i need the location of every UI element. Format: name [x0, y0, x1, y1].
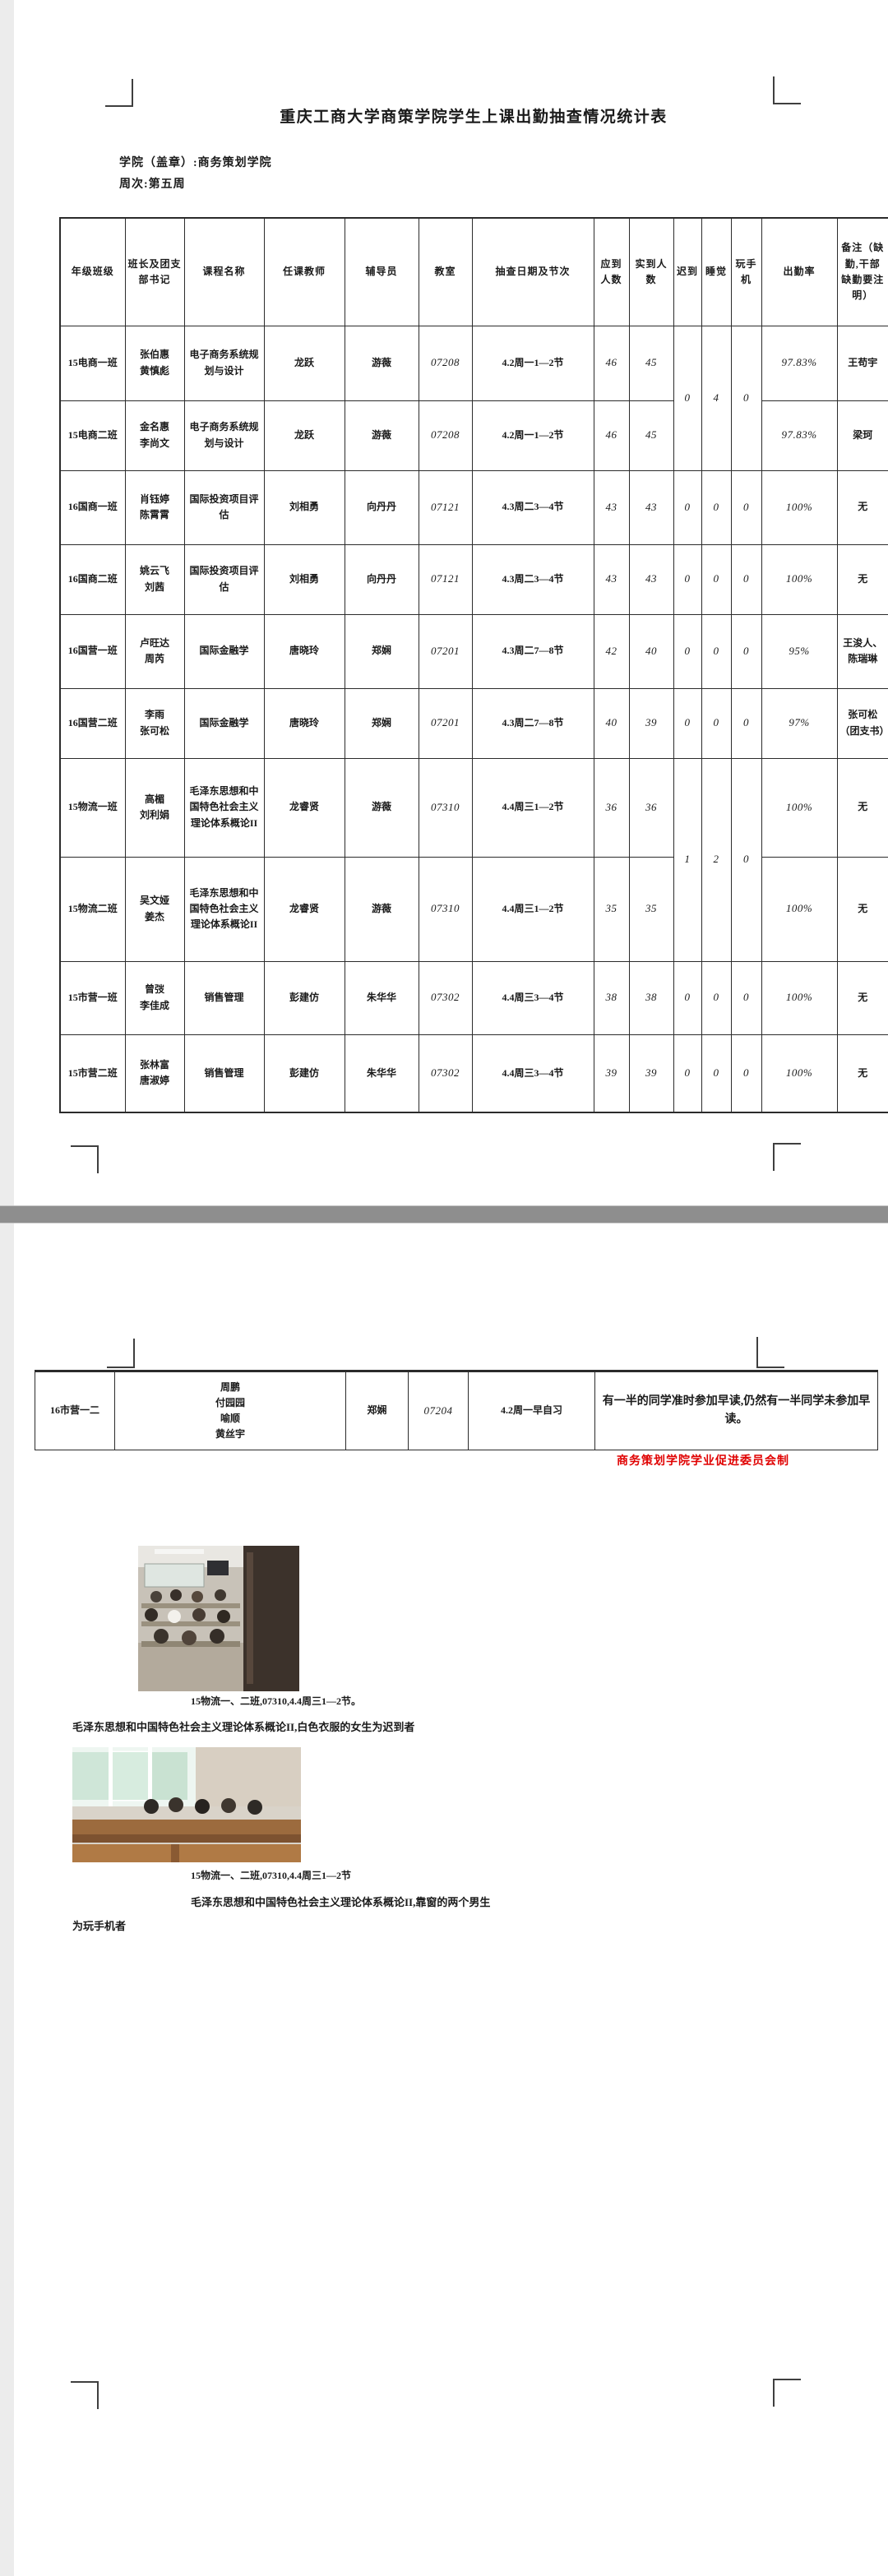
classroom-photo-1-image: [138, 1546, 299, 1691]
crop-mark-p1-bottom-left: [71, 1145, 99, 1173]
cell: 游薇: [345, 400, 419, 470]
document-view: { "page1": { "title": "重庆工商大学商策学院学生上课出勤抽…: [0, 0, 888, 2576]
cell: 0: [701, 688, 731, 758]
cell: 高楣 刘利娟: [125, 758, 184, 857]
cell: 16国营一班: [60, 614, 125, 688]
attendance-table: 年级班级班长及团支部书记课程名称任课教师辅导员教室抽查日期及节次应到人数实到人数…: [59, 217, 888, 1113]
column-header: 玩手机: [731, 218, 761, 326]
cell: 07208: [419, 400, 472, 470]
cell: 95%: [761, 614, 837, 688]
cell: 游薇: [345, 326, 419, 400]
cell: 97.83%: [761, 400, 837, 470]
cell: 金名惠 李尚文: [125, 400, 184, 470]
cell: 100%: [761, 1034, 837, 1112]
table-row: 15电商二班金名惠 李尚文电子商务系统规划与设计龙跃游薇072084.2周一1—…: [60, 400, 888, 470]
cell: 100%: [761, 961, 837, 1034]
cell: 07302: [419, 961, 472, 1034]
cell: 16国商一班: [60, 470, 125, 544]
cell: 王浚人、陈瑞琳: [837, 614, 888, 688]
cell: 38: [594, 961, 629, 1034]
cell: 46: [594, 400, 629, 470]
cell: 07121: [419, 544, 472, 614]
cell: 龙跃: [264, 400, 345, 470]
cell: 43: [594, 544, 629, 614]
cell: 35: [629, 857, 673, 961]
page-break-band: [0, 1205, 888, 1223]
cell: 0: [731, 614, 761, 688]
cell: 15物流二班: [60, 857, 125, 961]
table-row: 15市营二班张林富 唐淑婷销售管理彭建仿朱华华073024.4周三3—4节393…: [60, 1034, 888, 1112]
cell: 07302: [419, 1034, 472, 1112]
cell: 39: [629, 688, 673, 758]
cell: 43: [629, 544, 673, 614]
crop-mark-p2-bottom-left: [71, 2381, 99, 2409]
column-header: 出勤率: [761, 218, 837, 326]
photo2-description-line1: 毛泽东思想和中国特色社会主义理论体系概论II,靠窗的两个男生: [191, 1894, 490, 1909]
cell: 40: [594, 688, 629, 758]
cell: 彭建仿: [264, 1034, 345, 1112]
cell: 张伯惠 黄慎彪: [125, 326, 184, 400]
crop-mark-p1-bottom-right: [773, 1143, 801, 1171]
cell: 4.3周二7—8节: [472, 688, 594, 758]
cell: 无: [837, 758, 888, 857]
cell: 0: [673, 961, 701, 1034]
column-header: 年级班级: [60, 218, 125, 326]
cell: 郑娴: [346, 1371, 409, 1450]
table-row: 16国营一班卢旺达 周芮国际金融学唐晓玲郑娴072014.3周二7—8节4240…: [60, 614, 888, 688]
crop-mark-p1-top-left: [105, 79, 133, 107]
table-row: 16国营二班李雨 张可松国际金融学唐晓玲郑娴072014.3周二7—8节4039…: [60, 688, 888, 758]
cell: 0: [731, 758, 761, 961]
cell: 张林富 唐淑婷: [125, 1034, 184, 1112]
cell: 15物流一班: [60, 758, 125, 857]
cell: 有一半的同学准时参加早读,仍然有一半同学未参加早读。: [595, 1371, 878, 1450]
cell: 李雨 张可松: [125, 688, 184, 758]
classroom-photo-1: [138, 1546, 299, 1691]
cell: 07204: [409, 1371, 469, 1450]
cell: 梁珂: [837, 400, 888, 470]
cell: 07201: [419, 614, 472, 688]
cell: 4.4周三1—2节: [472, 857, 594, 961]
cell: 肖钰婷 陈霄霄: [125, 470, 184, 544]
cell: 国际投资项目评估: [184, 544, 264, 614]
cell: 36: [594, 758, 629, 857]
cell: 毛泽东思想和中国特色社会主义理论体系概论II: [184, 857, 264, 961]
cell: 4.2周一1—2节: [472, 326, 594, 400]
photo2-caption: 15物流一、二班,07310,4.4周三1—2节: [191, 1868, 351, 1882]
cell: 电子商务系统规划与设计: [184, 400, 264, 470]
cell: 毛泽东思想和中国特色社会主义理论体系概论II: [184, 758, 264, 857]
cell: 周鹏 付园园 喻顺 黄丝宇: [115, 1371, 346, 1450]
cell: 0: [673, 544, 701, 614]
classroom-photo-2-image: [72, 1747, 301, 1862]
cell: 07310: [419, 758, 472, 857]
attendance-table-continued: 16市营一二周鹏 付园园 喻顺 黄丝宇郑娴072044.2周一早自习有一半的同学…: [35, 1370, 878, 1450]
cell: 39: [594, 1034, 629, 1112]
column-header: 课程名称: [184, 218, 264, 326]
cell: 吴文娅 姜杰: [125, 857, 184, 961]
cell: 0: [731, 1034, 761, 1112]
page-title: 重庆工商大学商策学院学生上课出勤抽查情况统计表: [59, 104, 888, 127]
cell: 4.2周一早自习: [469, 1371, 595, 1450]
cell: 43: [594, 470, 629, 544]
cell: 39: [629, 1034, 673, 1112]
cell: 4.4周三1—2节: [472, 758, 594, 857]
cell: 卢旺达 周芮: [125, 614, 184, 688]
cell: 36: [629, 758, 673, 857]
crop-mark-p2-top-right: [756, 1337, 784, 1368]
crop-mark-p2-bottom-right: [773, 2379, 801, 2407]
college-line: 学院（盖章）:商务策划学院: [119, 154, 272, 170]
cell: 16国营二班: [60, 688, 125, 758]
cell: 无: [837, 961, 888, 1034]
cell: 0: [673, 470, 701, 544]
cell: 0: [701, 470, 731, 544]
cell: 1: [673, 758, 701, 961]
cell: 彭建仿: [264, 961, 345, 1034]
cell: 王苟宇: [837, 326, 888, 400]
cell: 100%: [761, 857, 837, 961]
cell: 郑娴: [345, 614, 419, 688]
photo1-description: 毛泽东思想和中国特色社会主义理论体系概论II,白色衣服的女生为迟到者: [72, 1718, 414, 1734]
cell: 4.3周二3—4节: [472, 470, 594, 544]
column-header: 任课教师: [264, 218, 345, 326]
cell: 97.83%: [761, 326, 837, 400]
table-row: 16市营一二周鹏 付园园 喻顺 黄丝宇郑娴072044.2周一早自习有一半的同学…: [35, 1371, 878, 1450]
photo2-description-line2: 为玩手机者: [72, 1917, 126, 1933]
cell: 龙睿贤: [264, 758, 345, 857]
crop-mark-p1-top-right: [773, 76, 801, 104]
cell: 刘相勇: [264, 470, 345, 544]
column-header: 班长及团支部书记: [125, 218, 184, 326]
cell: 100%: [761, 544, 837, 614]
cell: 0: [673, 1034, 701, 1112]
cell: 唐晓玲: [264, 688, 345, 758]
cell: 07121: [419, 470, 472, 544]
committee-signature: 商务策划学院学业促进委员会制: [35, 1452, 789, 1468]
column-header: 辅导员: [345, 218, 419, 326]
column-header: 睡觉: [701, 218, 731, 326]
cell: 0: [731, 688, 761, 758]
cell: 销售管理: [184, 1034, 264, 1112]
cell: 龙睿贤: [264, 857, 345, 961]
cell: 0: [731, 326, 761, 470]
cell: 4.4周三3—4节: [472, 961, 594, 1034]
cell: 15市营二班: [60, 1034, 125, 1112]
cell: 曾弢 李佳成: [125, 961, 184, 1034]
cell: 46: [594, 326, 629, 400]
cell: 16国商二班: [60, 544, 125, 614]
cell: 07208: [419, 326, 472, 400]
cell: 游薇: [345, 758, 419, 857]
cell: 唐晓玲: [264, 614, 345, 688]
table-row: 16国商二班姚云飞 刘茜国际投资项目评估刘相勇向丹丹071214.3周二3—4节…: [60, 544, 888, 614]
cell: 15电商一班: [60, 326, 125, 400]
table-row: 16国商一班肖钰婷 陈霄霄国际投资项目评估刘相勇向丹丹071214.3周二3—4…: [60, 470, 888, 544]
cell: 0: [673, 326, 701, 470]
cell: 97%: [761, 688, 837, 758]
cell: 0: [701, 544, 731, 614]
cell: 0: [673, 614, 701, 688]
column-header: 应到人数: [594, 218, 629, 326]
cell: 朱华华: [345, 961, 419, 1034]
cell: 43: [629, 470, 673, 544]
table-row: 15物流一班高楣 刘利娟毛泽东思想和中国特色社会主义理论体系概论II龙睿贤游薇0…: [60, 758, 888, 857]
column-header: 迟到: [673, 218, 701, 326]
cell: 张可松（团支书）: [837, 688, 888, 758]
cell: 0: [731, 470, 761, 544]
cell: 38: [629, 961, 673, 1034]
cell: 无: [837, 470, 888, 544]
cell: 刘相勇: [264, 544, 345, 614]
cell: 游薇: [345, 857, 419, 961]
cell: 无: [837, 857, 888, 961]
cell: 无: [837, 1034, 888, 1112]
cell: 45: [629, 400, 673, 470]
cell: 国际金融学: [184, 614, 264, 688]
cell: 无: [837, 544, 888, 614]
table-row: 15电商一班张伯惠 黄慎彪电子商务系统规划与设计龙跃游薇072084.2周一1—…: [60, 326, 888, 400]
cell: 0: [701, 614, 731, 688]
cell: 郑娴: [345, 688, 419, 758]
cell: 4.4周三3—4节: [472, 1034, 594, 1112]
cell: 姚云飞 刘茜: [125, 544, 184, 614]
column-header: 备注（缺勤,干部缺勤要注明）: [837, 218, 888, 326]
cell: 100%: [761, 758, 837, 857]
cell: 15电商二班: [60, 400, 125, 470]
table-row: 15市营一班曾弢 李佳成销售管理彭建仿朱华华073024.4周三3—4节3838…: [60, 961, 888, 1034]
cell: 42: [594, 614, 629, 688]
cell: 向丹丹: [345, 470, 419, 544]
table-row: 15物流二班吴文娅 姜杰毛泽东思想和中国特色社会主义理论体系概论II龙睿贤游薇0…: [60, 857, 888, 961]
cell: 朱华华: [345, 1034, 419, 1112]
cell: 07310: [419, 857, 472, 961]
cell: 0: [673, 688, 701, 758]
cell: 0: [701, 961, 731, 1034]
cell: 销售管理: [184, 961, 264, 1034]
cell: 龙跃: [264, 326, 345, 400]
photo1-caption: 15物流一、二班,07310,4.4周三1—2节。: [191, 1694, 361, 1708]
column-header: 教室: [419, 218, 472, 326]
window-left-margin: [0, 0, 14, 2576]
column-header: 抽查日期及节次: [472, 218, 594, 326]
cell: 4.3周二7—8节: [472, 614, 594, 688]
cell: 100%: [761, 470, 837, 544]
cell: 2: [701, 758, 731, 961]
column-header: 实到人数: [629, 218, 673, 326]
classroom-photo-2: [72, 1747, 301, 1862]
cell: 国际金融学: [184, 688, 264, 758]
cell: 0: [731, 544, 761, 614]
cell: 4: [701, 326, 731, 470]
cell: 0: [701, 1034, 731, 1112]
cell: 4.3周二3—4节: [472, 544, 594, 614]
cell: 15市营一班: [60, 961, 125, 1034]
cell: 16市营一二: [35, 1371, 115, 1450]
cell: 电子商务系统规划与设计: [184, 326, 264, 400]
cell: 0: [731, 961, 761, 1034]
crop-mark-p2-top-left: [107, 1339, 135, 1368]
cell: 07201: [419, 688, 472, 758]
week-line: 周次:第五周: [119, 175, 186, 192]
cell: 4.2周一1—2节: [472, 400, 594, 470]
cell: 向丹丹: [345, 544, 419, 614]
cell: 40: [629, 614, 673, 688]
cell: 45: [629, 326, 673, 400]
cell: 国际投资项目评估: [184, 470, 264, 544]
cell: 35: [594, 857, 629, 961]
